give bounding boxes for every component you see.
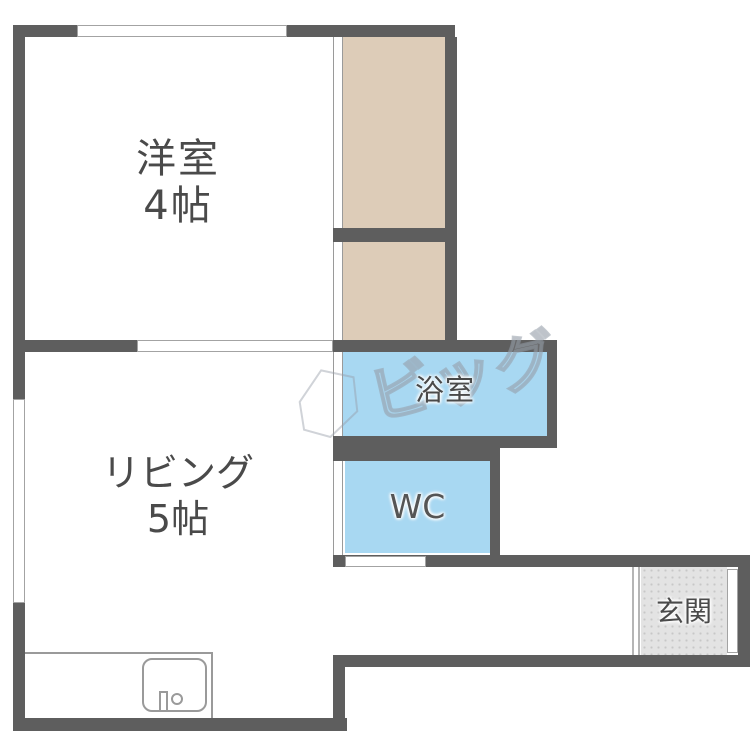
bathroom-label: 浴室: [343, 374, 547, 406]
hallway-door: [345, 556, 426, 567]
entrance-step-line-outer: [632, 567, 634, 655]
wall-hall-bottom: [333, 655, 750, 667]
room-sliding-door: [137, 340, 333, 352]
wall-mid-right: [333, 340, 557, 352]
wall-bath-bottom: [333, 436, 557, 448]
wall-mid-left: [25, 340, 137, 352]
living-room-size: 5帖: [48, 496, 308, 542]
window-left: [13, 399, 25, 603]
wc-label: WC: [345, 489, 490, 525]
closet-sliding-boundary: [333, 37, 343, 340]
wall-bath-right: [547, 340, 557, 448]
front-door: [727, 569, 738, 653]
wall-left: [13, 25, 25, 731]
faucet-icon: [159, 691, 168, 712]
western-room-name: 洋室: [48, 136, 308, 183]
wall-closet-right: [445, 37, 457, 340]
living-room-name: リビング: [48, 450, 308, 496]
closet-upper-area: [343, 37, 445, 228]
wall-closet-divider: [333, 228, 457, 242]
floorplan: ビッグ 洋室 4帖 リビング 5帖 浴室 WC 玄関: [0, 0, 750, 750]
western-room-size: 4帖: [48, 183, 308, 230]
wall-wc-top: [333, 448, 500, 461]
closet-lower-area: [343, 242, 445, 340]
entrance-step-line-inner: [638, 567, 640, 655]
western-room-label: 洋室 4帖: [48, 136, 308, 230]
entrance-label: 玄関: [641, 596, 727, 627]
wall-hall-right: [738, 555, 750, 667]
wall-living-bottom: [13, 718, 347, 731]
drain-icon: [171, 693, 183, 705]
wall-wc-right: [490, 448, 500, 567]
living-room-label: リビング 5帖: [48, 450, 308, 542]
window-top: [77, 25, 287, 37]
